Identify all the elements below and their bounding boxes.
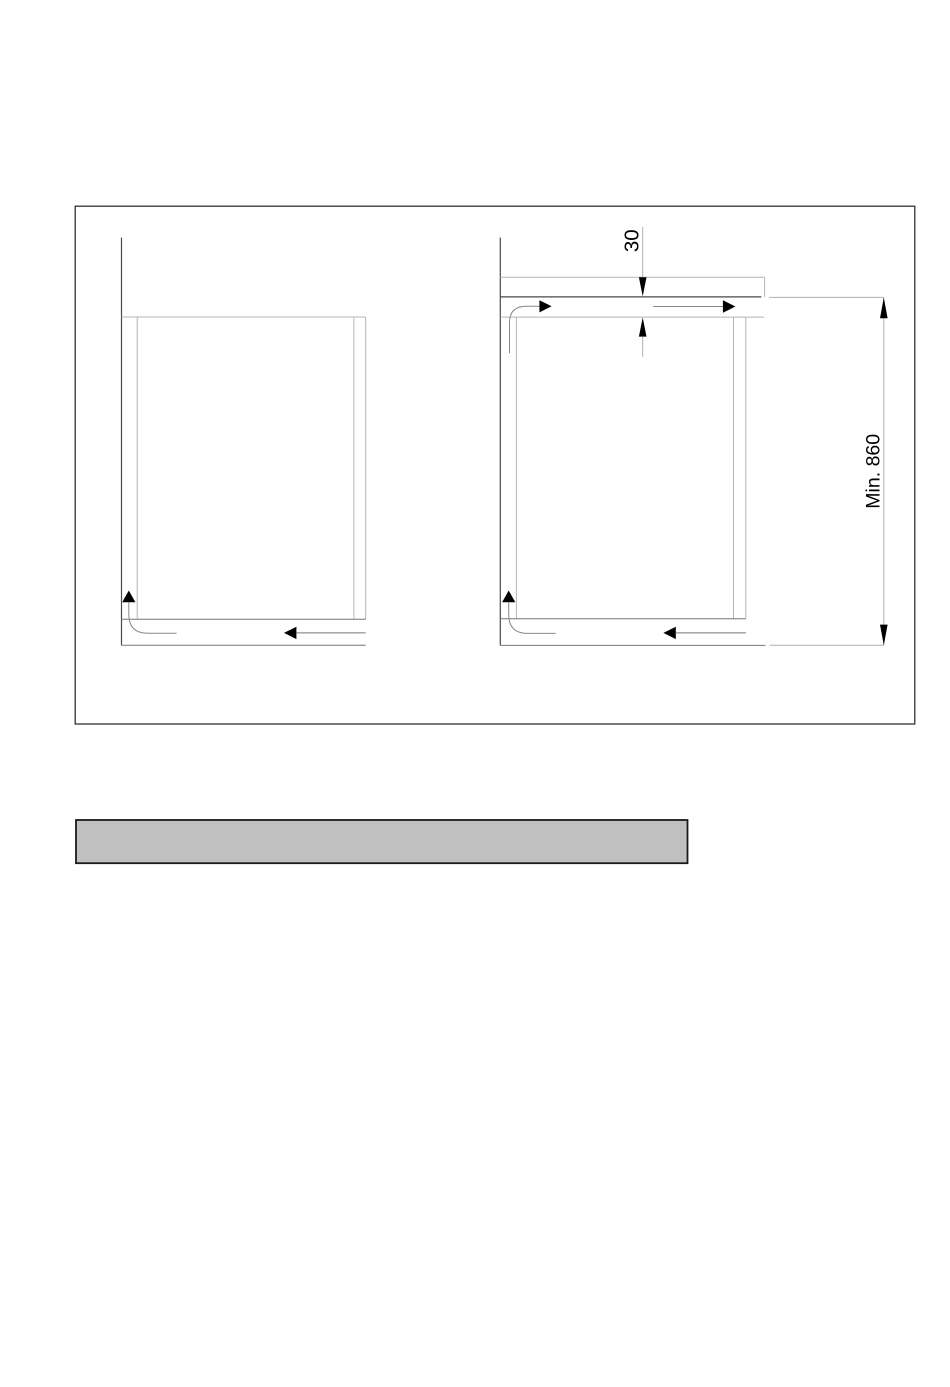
svg-text:30: 30: [621, 229, 644, 252]
svg-text:Min. 860: Min. 860: [862, 434, 884, 509]
